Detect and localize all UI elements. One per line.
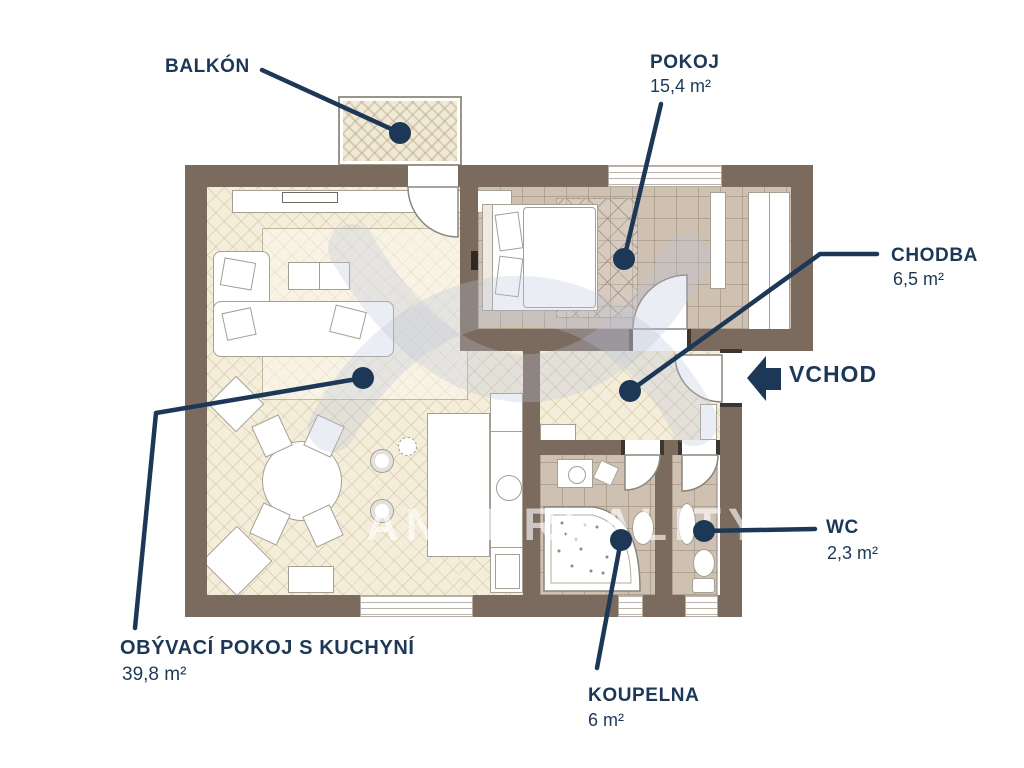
sofa-cushion — [220, 257, 256, 290]
wall-bedroom-bottom-right — [687, 329, 813, 351]
bathroom-door-opening — [625, 441, 660, 455]
bedroom-window — [608, 165, 722, 187]
closet-strip — [710, 192, 726, 289]
wall-tv-chip — [471, 251, 478, 270]
pillow — [495, 212, 524, 252]
label-vchod: VCHOD — [789, 363, 877, 386]
wall-bottom-2 — [473, 595, 618, 617]
counter-divider — [491, 431, 522, 432]
wall-right-bedroom — [791, 165, 813, 351]
wardrobe-divider — [769, 193, 770, 331]
door-jamb — [720, 403, 742, 407]
label-chodba: CHODBA — [891, 246, 978, 265]
wall-top-mid — [458, 165, 608, 187]
label-balkon: BALKÓN — [165, 57, 250, 76]
wall-bedroom-bottom-left — [460, 329, 633, 351]
kitchen-counter — [490, 393, 523, 593]
wall-hall-bath — [523, 440, 625, 455]
label-pokoj: POKOJ — [650, 53, 720, 72]
bed-headboard — [482, 204, 493, 311]
wc-door-opening — [682, 441, 718, 455]
label-koupelna: KOUPELNA — [588, 686, 699, 705]
duvet — [523, 207, 596, 308]
pillow — [495, 256, 524, 298]
wardrobe — [748, 192, 790, 332]
area-obyvaci-pokoj: 39,8 m² — [122, 665, 186, 684]
entrance-door-opening — [720, 353, 742, 403]
bedroom-door-opening — [633, 329, 687, 351]
floor-plan-canvas: ANDI REALITY BALKÓN POKOJ 15,4 m² CHODBA… — [0, 0, 1024, 768]
plant — [398, 437, 417, 456]
door-jamb — [629, 329, 633, 351]
door-jamb — [687, 329, 691, 351]
coffee-table — [288, 262, 350, 290]
area-wc: 2,3 m² — [827, 544, 878, 562]
kitchen-sink — [496, 475, 522, 501]
label-obyvaci-pokoj: OBÝVACÍ POKOJ S KUCHYNÍ — [120, 638, 415, 658]
label-wc: WC — [826, 518, 859, 537]
wall-living-hall — [523, 347, 540, 595]
area-pokoj: 15,4 m² — [650, 77, 711, 95]
door-jamb — [720, 349, 742, 353]
bar-stool — [370, 449, 394, 473]
door-jamb — [716, 440, 720, 455]
washing-machine — [557, 459, 593, 488]
toilet-bowl — [693, 549, 715, 577]
entrance-arrow-icon — [747, 356, 781, 401]
balcony-door-opening — [408, 166, 458, 187]
balcony-floor — [343, 101, 457, 161]
wall-left — [185, 165, 207, 617]
balcony — [338, 96, 462, 166]
area-chodba: 6,5 m² — [893, 270, 944, 288]
stove — [495, 554, 520, 589]
bathroom-window — [618, 595, 643, 617]
door-jamb — [621, 440, 625, 455]
coffee-table-divider — [319, 263, 320, 289]
area-koupelna: 6 m² — [588, 711, 624, 729]
hall-shelf — [700, 404, 717, 440]
door-jamb — [678, 440, 682, 455]
door-jamb — [660, 440, 664, 455]
washer-drum — [568, 466, 586, 484]
watermark-text: ANDI REALITY — [366, 502, 765, 547]
toilet-tank — [692, 578, 715, 593]
living-room-window — [360, 595, 473, 617]
wc-window — [685, 595, 718, 617]
tv-screen — [282, 192, 338, 203]
wall-bottom-1 — [185, 595, 360, 617]
wall-top-left — [185, 165, 408, 187]
side-table — [288, 566, 334, 593]
wall-bottom-3 — [643, 595, 685, 617]
